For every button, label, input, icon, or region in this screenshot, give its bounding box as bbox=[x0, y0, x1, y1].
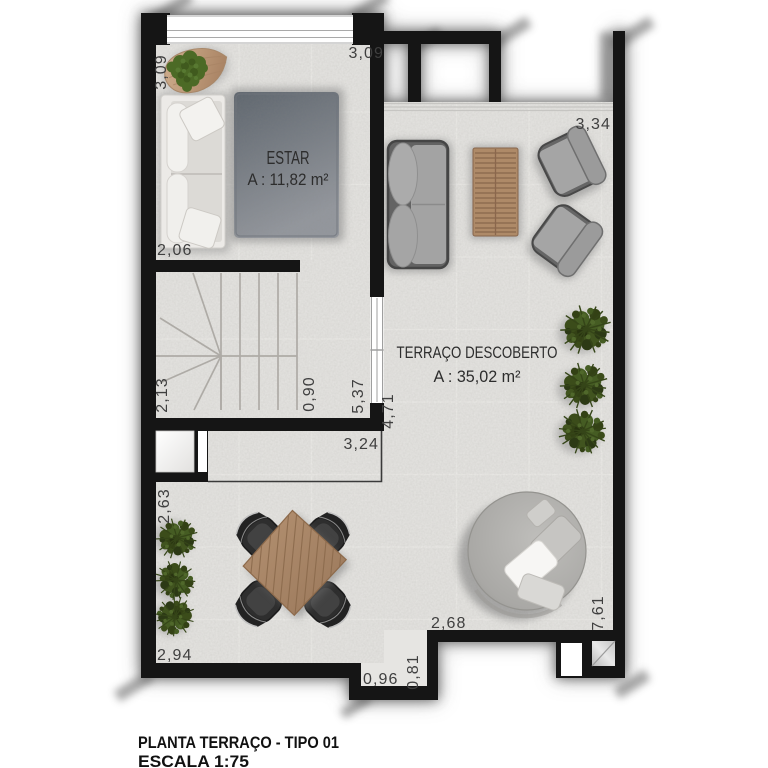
svg-text:PLANTA TERRAÇO - TIPO 01: PLANTA TERRAÇO - TIPO 01 bbox=[138, 733, 339, 752]
svg-text:0,81: 0,81 bbox=[405, 654, 422, 690]
svg-text:4,71: 4,71 bbox=[380, 393, 397, 429]
svg-text:ESCALA 1:75: ESCALA 1:75 bbox=[138, 752, 249, 768]
svg-text:3,34: 3,34 bbox=[575, 116, 611, 133]
svg-text:TERRAÇO DESCOBERTO: TERRAÇO DESCOBERTO bbox=[397, 344, 558, 362]
svg-text:2,94: 2,94 bbox=[157, 647, 193, 664]
svg-text:2,63: 2,63 bbox=[156, 488, 173, 524]
svg-text:2,13: 2,13 bbox=[154, 377, 171, 413]
svg-text:0,96: 0,96 bbox=[363, 671, 399, 688]
svg-text:3,09: 3,09 bbox=[153, 54, 170, 90]
svg-text:0,90: 0,90 bbox=[301, 376, 318, 412]
svg-text:A : 35,02 m²: A : 35,02 m² bbox=[434, 368, 521, 386]
svg-text:5,37: 5,37 bbox=[350, 378, 367, 414]
svg-text:ESTAR: ESTAR bbox=[267, 148, 310, 168]
svg-text:3,09: 3,09 bbox=[348, 45, 384, 62]
svg-text:3,24: 3,24 bbox=[343, 436, 379, 453]
svg-text:A : 11,82 m²: A : 11,82 m² bbox=[248, 171, 329, 189]
svg-text:2,06: 2,06 bbox=[157, 242, 193, 259]
svg-text:7,61: 7,61 bbox=[590, 595, 607, 631]
svg-text:2,68: 2,68 bbox=[431, 615, 467, 632]
